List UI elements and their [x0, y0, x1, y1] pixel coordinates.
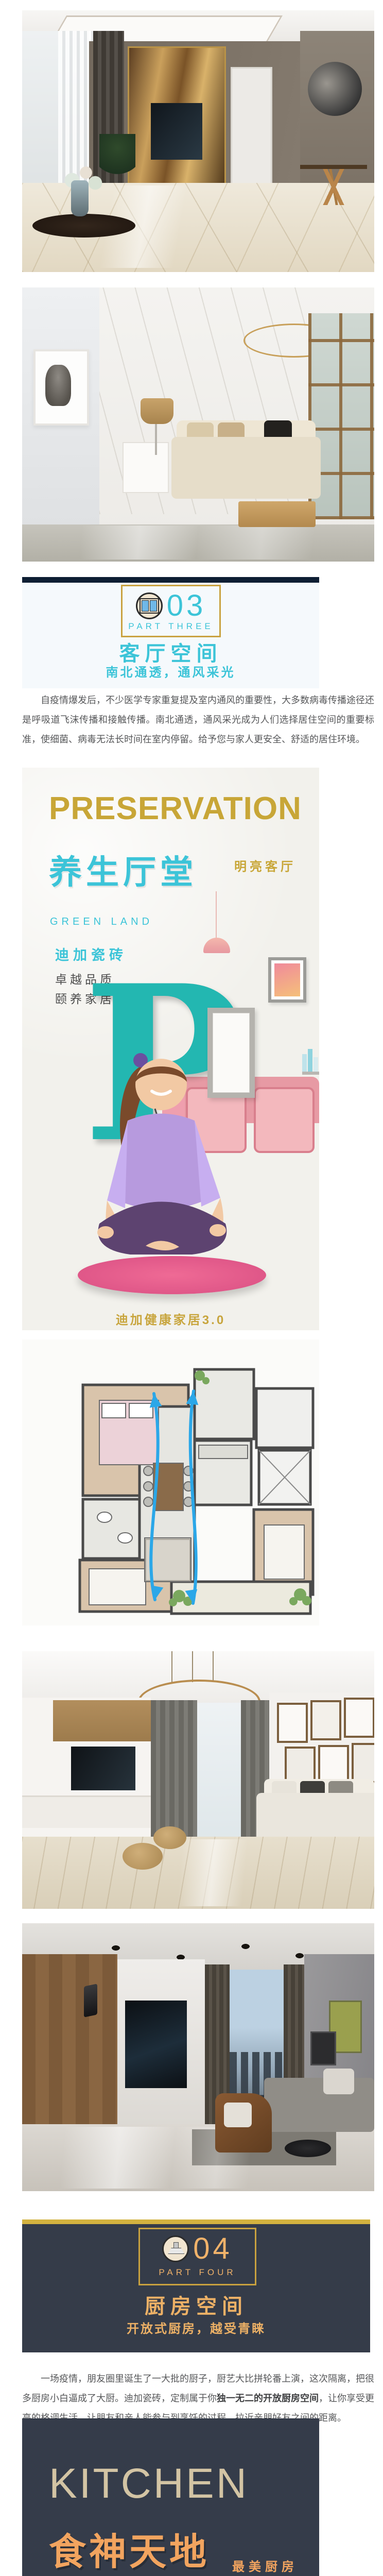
beige-sofa — [171, 437, 321, 499]
pendant-lamp-cord — [216, 891, 217, 939]
tv-screen — [125, 2001, 187, 2088]
bright-living-room-photo — [22, 287, 374, 562]
article-page: 03 PART THREE 客厅空间 南北通透，通风采光 自疫情爆发后，不少医学… — [0, 0, 383, 2576]
tv-screen — [71, 1747, 135, 1790]
part-number-badge: 03 PART THREE — [121, 585, 221, 637]
sofa-pillow — [323, 2069, 354, 2094]
table-lamp-stand — [155, 424, 157, 455]
preservation-poster: PRESERVATION 养生厅堂 明亮客厅 GREEN LAND 迪加瓷砖 卓… — [22, 768, 319, 1330]
meditating-woman-illustration — [63, 1046, 259, 1283]
poster-title-en: PRESERVATION — [49, 790, 302, 827]
navy-top-bar — [22, 577, 319, 583]
window-icon — [136, 592, 163, 619]
wood-feature-wall — [22, 1954, 117, 2124]
wood-cabinet — [53, 1700, 151, 1741]
part-label: PART THREE — [123, 621, 219, 632]
wall-sconce — [84, 1984, 97, 2018]
vase — [71, 180, 89, 216]
animal-print-frame — [310, 1700, 341, 1740]
section-03-header: 03 PART THREE 客厅空间 南北通透，通风采光 — [22, 577, 319, 688]
living-room-tv-wall-photo — [22, 10, 374, 272]
wood-floor-living-room-photo — [22, 1651, 374, 1909]
console-table-legs — [305, 169, 362, 205]
coffee-table — [32, 214, 135, 238]
shelf-books — [302, 1036, 319, 1075]
living-room-paragraph: 自疫情爆发后，不少医学专家重复提及室内通风的重要性，大多数病毒传播途径还是呼吸道… — [22, 690, 374, 749]
table-lamp — [141, 398, 173, 424]
animal-print-frame — [344, 1698, 374, 1738]
part-number-badge: 04 PART FOUR — [138, 2228, 256, 2285]
poster-title-en: KITCHEN — [49, 2460, 249, 2508]
console-table-top — [300, 165, 367, 169]
kitchen-poster: KITCHEN 食神天地 最美厨房 GREEN LAND 迪加瓷砖 美食空间 K — [22, 2418, 319, 2576]
poster-tag: 最美厨房 — [232, 2556, 298, 2574]
floor-reflection — [53, 526, 341, 560]
paragraph-bold-text: 独一无二的开放厨房空间 — [217, 2393, 319, 2403]
section-subtitle: 开放式厨房，越受青睐 — [22, 2318, 370, 2336]
tv-cabinet — [22, 1795, 151, 1828]
round-wall-mirror — [308, 62, 362, 116]
part-number: 03 — [167, 591, 206, 621]
part-number: 04 — [193, 2234, 233, 2264]
floor-reflection — [166, 1839, 269, 1906]
rattan-pouf — [153, 1826, 186, 1849]
section-subtitle: 南北通透，通风采光 — [22, 662, 319, 680]
small-picture-frame — [268, 957, 306, 1003]
wood-coffee-table — [238, 501, 316, 527]
poster-brand: GREEN LAND — [50, 916, 153, 928]
rattan-pouf — [123, 1843, 163, 1870]
chair-pillow — [224, 2103, 252, 2127]
wall-art — [310, 2031, 336, 2065]
white-door — [231, 67, 272, 191]
grey-sofa — [264, 2078, 374, 2132]
section-04-header: 04 PART FOUR 厨房空间 开放式厨房，越受青睐 — [22, 2219, 370, 2352]
tv-screen — [151, 103, 202, 160]
dark-modern-living-room-photo — [22, 1923, 374, 2191]
horse-artwork — [45, 365, 71, 406]
section-title: 厨房空间 — [22, 2290, 370, 2319]
poster-footer: 迪加健康家居3.0 — [22, 1310, 319, 1328]
poster-title-cn: 食神天地 — [49, 2521, 210, 2575]
poster-tag: 明亮客厅 — [234, 856, 296, 874]
round-coffee-table — [285, 2140, 331, 2157]
grey-curtain-left — [151, 1700, 197, 1844]
animal-print-frame — [277, 1703, 308, 1743]
poster-title-cn: 养生厅堂 — [49, 846, 197, 893]
bright-window — [197, 1703, 241, 1842]
chandelier-cords — [192, 1651, 193, 1682]
gold-top-bar — [22, 2219, 370, 2224]
floorplan-drawing — [22, 1340, 319, 1625]
plant — [99, 134, 135, 180]
range-hood-icon — [162, 2235, 189, 2262]
side-cabinet — [123, 442, 169, 493]
part-label: PART FOUR — [140, 2267, 255, 2278]
apartment-floorplan — [22, 1340, 319, 1625]
animal-print-frame — [352, 1743, 374, 1783]
